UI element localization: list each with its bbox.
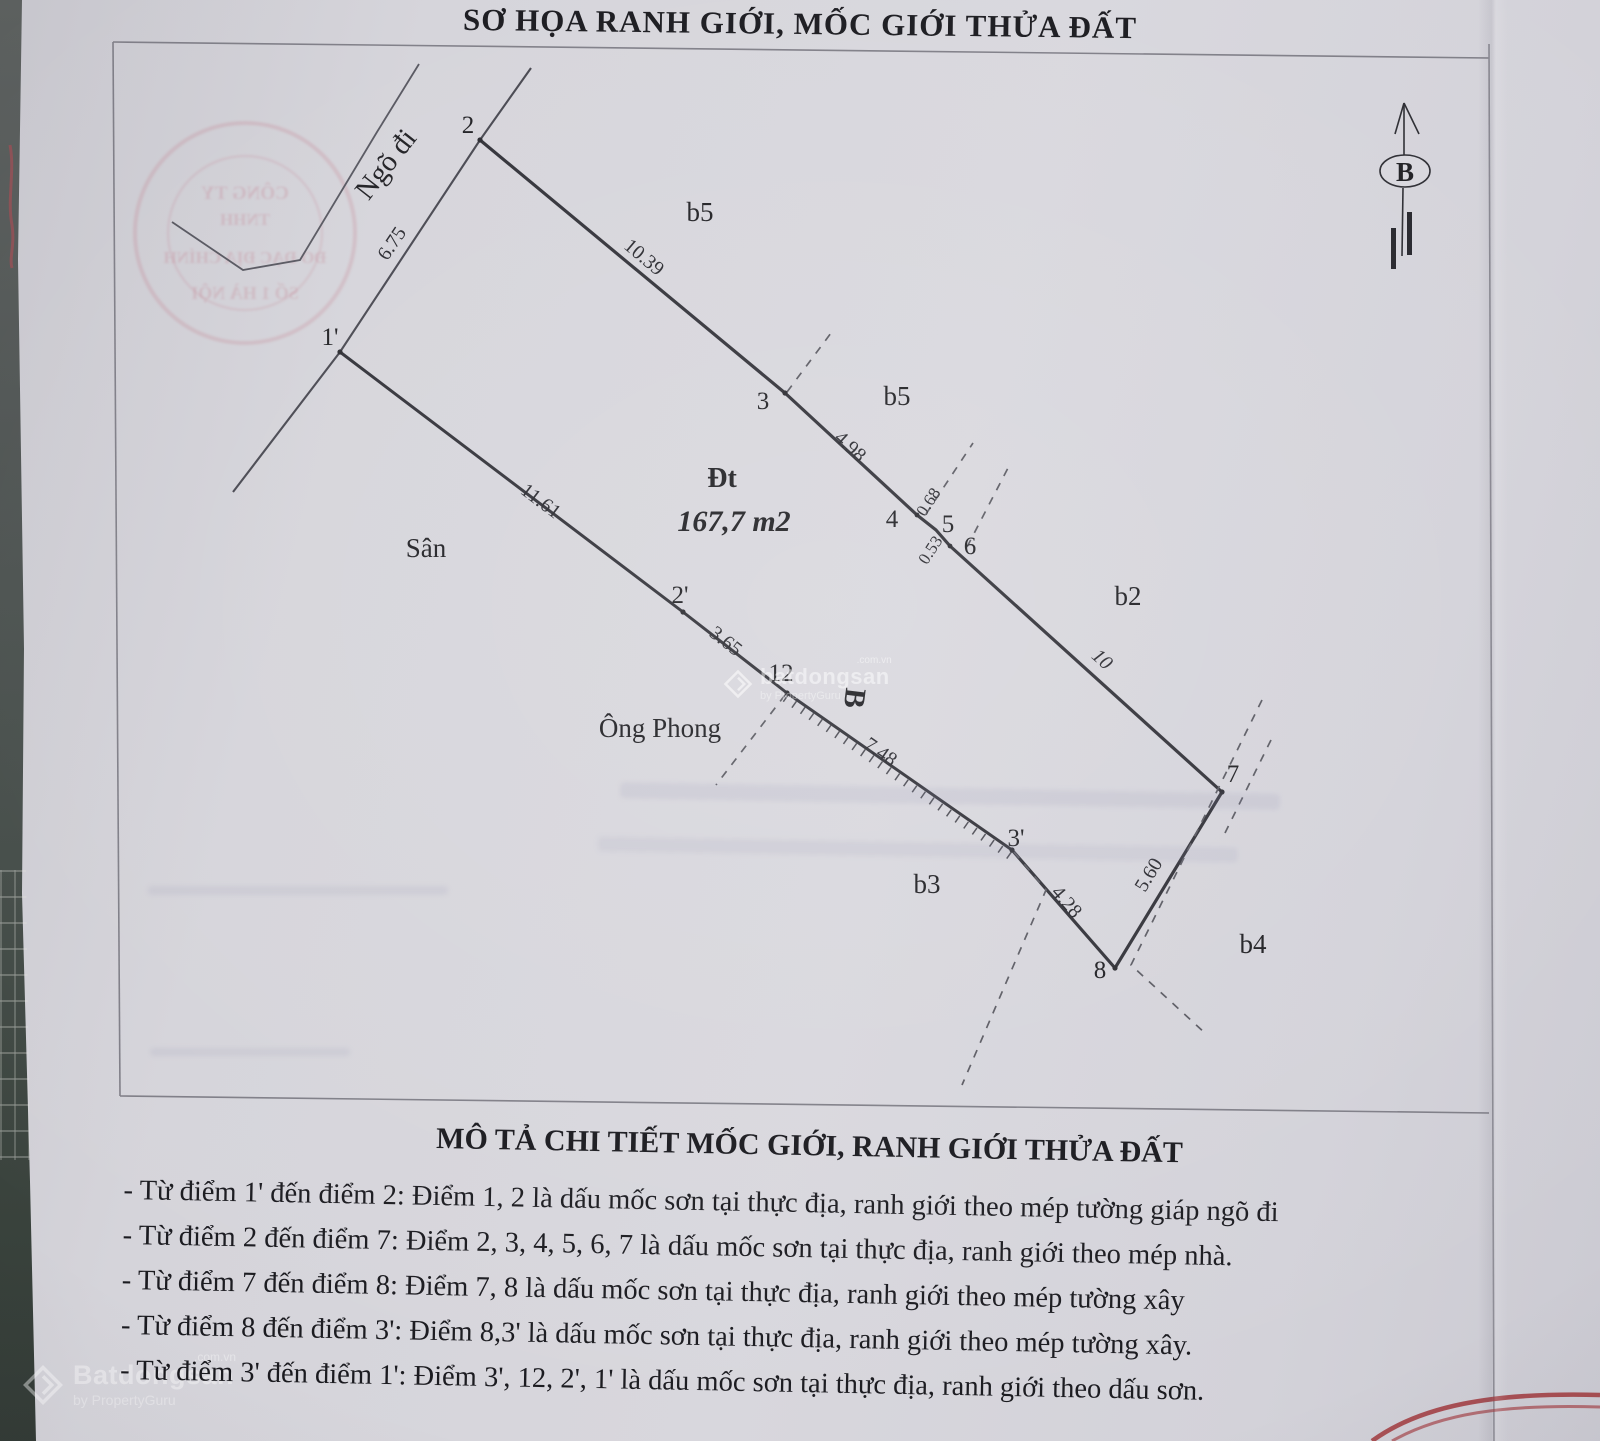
north-arrow-tick-1 <box>1391 228 1396 269</box>
point-label-5: 5 <box>942 511 955 538</box>
yard-label: Sân <box>406 533 447 563</box>
zone-label-b3: b3 <box>914 869 941 899</box>
length-3p-8: 4.28 <box>1047 882 1087 923</box>
point-label-1p: 1' <box>321 324 338 351</box>
plot-code-label: Đt <box>707 463 737 494</box>
zone-label-b5-top: b5 <box>687 197 714 227</box>
length-2-3: 10.39 <box>620 235 669 281</box>
point-label-2: 2 <box>462 112 475 139</box>
frame-bottom-line <box>120 1096 1489 1113</box>
neighbor-owner-label: Ông Phong <box>599 713 721 743</box>
zone-label-b2: b2 <box>1115 581 1142 611</box>
point-label-8: 8 <box>1094 957 1107 984</box>
point-label-6: 6 <box>964 533 977 560</box>
wall-hatch-ticks <box>785 698 1010 856</box>
length-12-3p: 7.48 <box>860 733 901 771</box>
point-label-4: 4 <box>886 506 899 533</box>
frame-top-line <box>113 42 1489 58</box>
point-label-3: 3 <box>757 388 770 415</box>
point-label-7: 7 <box>1227 761 1240 788</box>
watermark-center: .com.vn batdongsan by PropertyGuru <box>723 666 890 702</box>
road-label: Ngõ đi <box>349 123 423 206</box>
north-label: B <box>1396 157 1414 187</box>
stamp-line-4: SỐ 1 HÀ NỘI <box>191 282 299 303</box>
boundary-line-main <box>480 140 1222 968</box>
survey-marker-dots <box>337 137 1224 970</box>
dashed-at-point-3 <box>787 329 834 392</box>
dashed-witness-lines <box>716 329 1271 1085</box>
point-label-3p: 3' <box>1007 825 1024 852</box>
watermark-text: .com.vn batdongsan by PropertyGuru <box>760 666 890 702</box>
left-edge-stamp-remnant <box>10 145 13 268</box>
stamp-line-1: CÔNG TY <box>201 182 289 204</box>
zone-labels: b5 b5 b2 b3 b4 Sân Ông Phong Đt 167,7 m2… <box>349 123 1267 959</box>
watermark-brand: batdongsan <box>760 666 890 688</box>
company-stamp: CÔNG TY TNHH ĐO ĐẠC ĐỊA CHÍNH SỐ 1 HÀ NỘ… <box>135 123 355 343</box>
stamp-line-2: TNHH <box>220 210 270 229</box>
batdongsan-logo-icon <box>723 669 753 699</box>
length-1p-2: 6.75 <box>373 223 411 264</box>
batdongsan-logo-icon <box>22 1364 64 1406</box>
point-labels: 2 1' 3 4 5 6 7 8 3' 12 2' <box>321 112 1239 984</box>
boundary-line-1p-2 <box>233 68 531 492</box>
watermark-byline: by PropertyGuru <box>73 1393 234 1407</box>
zone-label-b5-mid: b5 <box>884 381 911 411</box>
frame-left-line <box>113 42 120 1096</box>
scanned-land-survey-document: { "title": "SƠ HỌA RANH GIỚI, MỐC GIỚI T… <box>0 0 1600 1441</box>
watermark-domain: .com.vn <box>857 656 892 666</box>
dashed-at-point-12 <box>716 695 785 785</box>
north-arrow-tick-2 <box>1407 212 1412 255</box>
watermark-byline: by PropertyGuru <box>760 691 890 702</box>
length-3-4: 4.98 <box>830 427 871 467</box>
length-6-7: 10 <box>1087 645 1117 675</box>
plot-area-label: 167,7 m2 <box>677 505 790 538</box>
boundary-description-section: MÔ TẢ CHI TIẾT MỐC GIỚI, RANH GIỚI THỬA … <box>120 1116 1495 1419</box>
point-label-2p: 2' <box>671 582 688 609</box>
edge-length-labels: 6.75 10.39 4.98 0.68 0.53 10 5.60 4.28 7… <box>373 223 1167 923</box>
zone-label-b4: b4 <box>1240 929 1268 959</box>
dashed-below-3p <box>962 852 1046 1085</box>
